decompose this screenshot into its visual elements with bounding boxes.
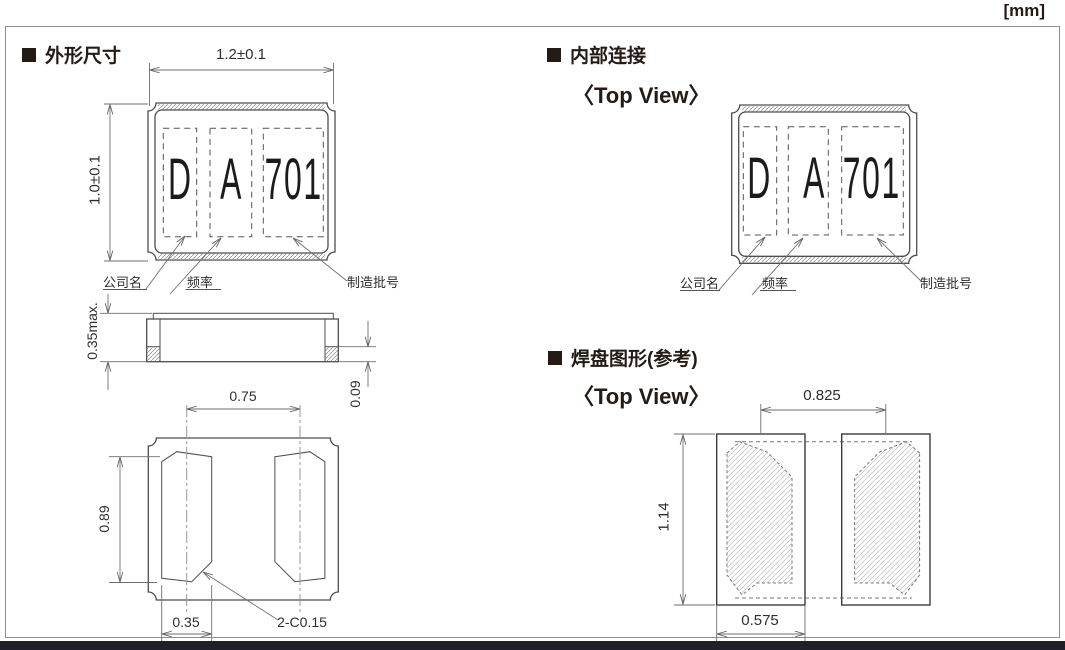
- marking-frequency-code: A: [803, 150, 826, 208]
- outline-bottom-view: [109, 405, 338, 641]
- dim-terminal-thickness: 0.09: [347, 380, 363, 407]
- label-lot: 制造批号: [347, 272, 399, 291]
- component-pad-shadow-left: [727, 442, 792, 595]
- marking-lot-code: 701: [264, 151, 322, 209]
- label-frequency: 频率: [762, 273, 788, 292]
- dim-body-width: 1.2±0.1: [216, 46, 266, 63]
- package-marking: D A 701: [148, 151, 335, 209]
- outline-side-view: [100, 294, 376, 390]
- dim-pad-pitch: 0.825: [803, 387, 841, 404]
- section-title-outline: 外形尺寸: [22, 41, 121, 68]
- section-bullet: [547, 48, 561, 62]
- terminal-pad-side-left: [147, 347, 159, 361]
- section-bullet: [22, 48, 36, 62]
- dim-terminal-width: 0.35: [172, 614, 199, 630]
- section-title-land: 焊盘图形(参考): [548, 344, 698, 371]
- marking-company-code: D: [747, 150, 772, 208]
- section-bullet: [548, 351, 562, 365]
- dim-pad-width: 0.575: [741, 612, 779, 629]
- dim-terminal-pitch: 0.75: [229, 388, 256, 404]
- lid-side: [153, 313, 333, 319]
- internal-top-view-label: 〈Top View〉: [572, 78, 711, 110]
- seal-band-bottom: [158, 254, 325, 259]
- marking-company-code: D: [168, 151, 193, 209]
- dim-body-height: 1.0±0.1: [87, 155, 104, 205]
- technical-drawing-canvas: [0, 0, 1065, 650]
- dim-terminal-length: 0.89: [96, 505, 112, 532]
- land-pattern-view: [674, 404, 930, 641]
- bottom-outline: [148, 438, 338, 600]
- terminal-pad-side-right: [326, 347, 338, 361]
- package-marking: D A 701: [731, 150, 916, 208]
- seal-band-bottom: [742, 257, 906, 262]
- seal-band-top: [158, 104, 325, 109]
- label-company: 公司名: [680, 273, 719, 292]
- dim-pad-height: 1.14: [656, 502, 673, 531]
- section-title-internal: 内部连接: [547, 41, 646, 68]
- dim-corner-chamfer: 2-C0.15: [277, 614, 327, 630]
- land-top-view-label: 〈Top View〉: [572, 379, 711, 411]
- label-frequency: 频率: [187, 272, 213, 291]
- datasheet-drawing-page: [mm]: [0, 0, 1065, 650]
- label-lot: 制造批号: [920, 273, 972, 292]
- marking-lot-code: 701: [842, 150, 900, 208]
- body-side: [147, 319, 339, 362]
- seal-band-top: [742, 106, 906, 111]
- component-pad-shadow-right: [855, 442, 920, 595]
- label-company: 公司名: [103, 272, 142, 291]
- marking-frequency-code: A: [220, 151, 243, 209]
- dim-height-max: 0.35max.: [84, 302, 100, 360]
